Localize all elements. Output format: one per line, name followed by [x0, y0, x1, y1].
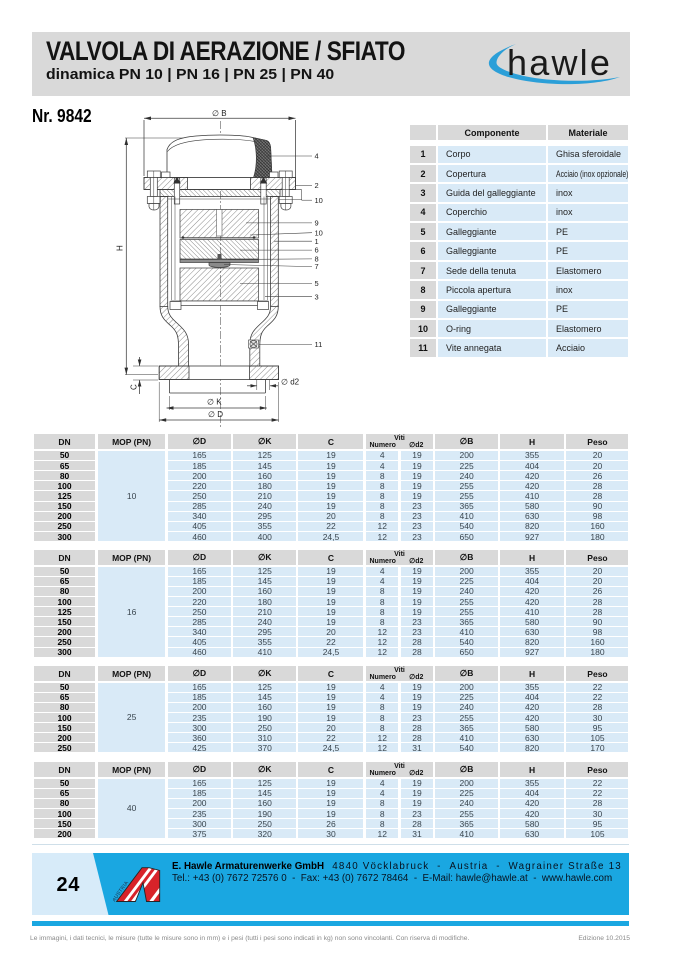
svg-text:9: 9 [315, 219, 319, 228]
svg-text:5: 5 [315, 279, 319, 288]
svg-text:hawle: hawle [507, 42, 612, 83]
svg-text:C: C [130, 384, 139, 390]
svg-text:7: 7 [315, 262, 319, 271]
svg-text:1: 1 [315, 237, 319, 246]
svg-text:H: H [116, 245, 125, 251]
svg-text:∅ K: ∅ K [207, 398, 222, 407]
svg-text:11: 11 [315, 340, 323, 349]
svg-text:3: 3 [315, 292, 319, 301]
svg-text:∅ D: ∅ D [208, 410, 223, 419]
svg-text:6: 6 [315, 246, 319, 255]
svg-text:∅ B: ∅ B [212, 109, 227, 118]
svg-text:∅ d2: ∅ d2 [281, 378, 300, 387]
svg-text:2: 2 [315, 181, 319, 190]
svg-text:10: 10 [315, 196, 323, 205]
svg-text:4: 4 [315, 152, 319, 161]
